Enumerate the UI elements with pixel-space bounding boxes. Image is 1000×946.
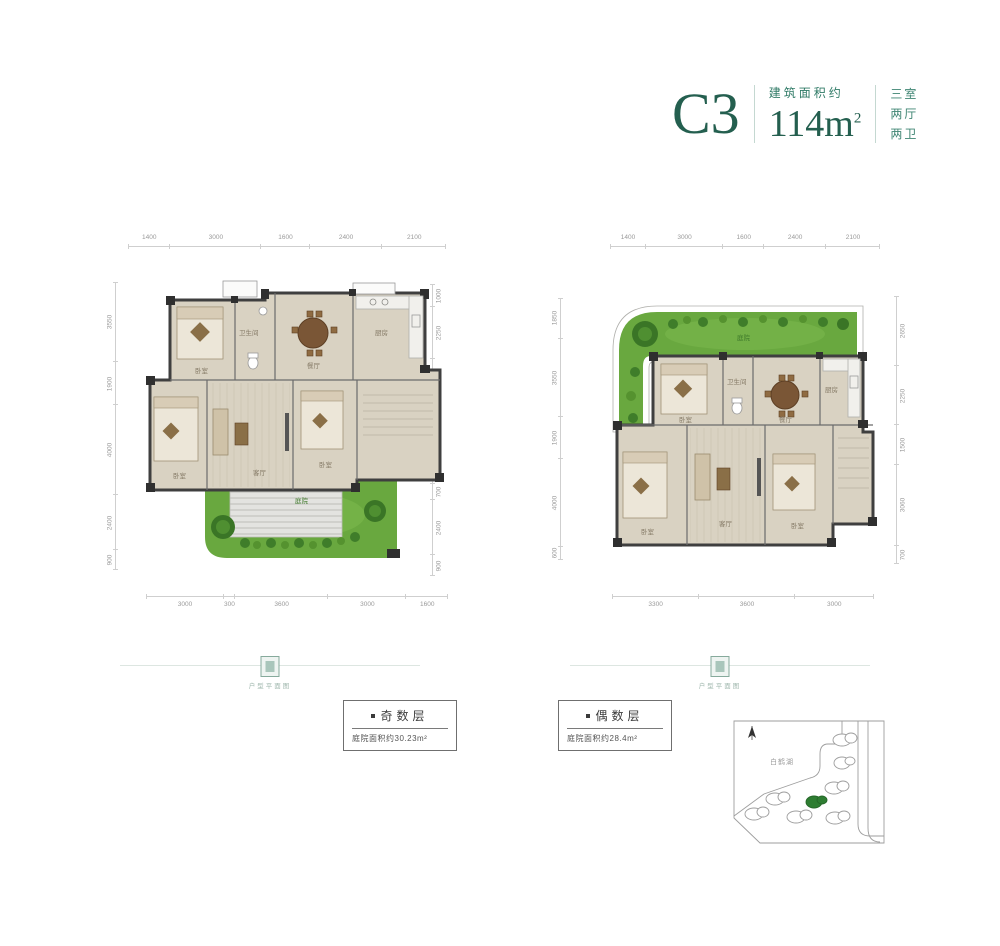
bullet-icon: [586, 714, 590, 718]
logo-seal-icon: [711, 656, 730, 677]
area-value: 114m2: [769, 105, 862, 143]
room-label: 卫生间: [239, 328, 259, 337]
even-plan-divider: 户型平面图: [570, 652, 870, 694]
building-footprints: [745, 733, 857, 824]
even-floor-area: 庭院面积约28.4m²: [567, 733, 663, 744]
header-divider: [875, 85, 876, 143]
room-label: 卧室: [319, 460, 333, 469]
even-floor-badge: 偶数层 庭院面积约28.4m²: [558, 700, 672, 751]
even-floor-plan: 庭院 卧室 卫生间 餐厅 厨房 卧室 客厅 卧室: [605, 292, 905, 582]
logo-seal-icon: [261, 656, 280, 677]
bullet-icon: [371, 714, 375, 718]
site-boundary: [734, 721, 884, 843]
room-label: 卧室: [791, 521, 805, 530]
odd-plan-divider: 户型平面图: [120, 652, 420, 694]
highlighted-building: [806, 796, 827, 808]
area-label: 建筑面积约: [769, 84, 862, 101]
divider-caption: 户型平面图: [120, 680, 420, 690]
layout-line: 两厅: [890, 105, 918, 122]
even-floor-title: 偶数层: [595, 707, 643, 724]
room-label: 卫生间: [727, 377, 747, 386]
odd-floor-plan: 卧室 卫生间 餐厅 厨房 卧室 客厅 卧室 庭院: [135, 275, 445, 575]
even-dims-top: 1400 3000 1600 2400 2100: [610, 234, 880, 247]
site-map: 白鹤湖: [730, 716, 888, 848]
divider-caption: 户型平面图: [570, 680, 870, 690]
odd-floor-badge: 奇数层 庭院面积约30.23m²: [343, 700, 457, 751]
odd-dims-left: 3550 1900 4000 2400 900: [103, 282, 116, 570]
lake-label: 白鹤湖: [770, 757, 794, 766]
room-label: 庭院: [295, 496, 309, 505]
room-label: 卧室: [195, 366, 209, 375]
room-label: 厨房: [825, 385, 838, 394]
layout-block: 三室 两厅 两卫: [890, 85, 918, 142]
badge-rule: [352, 728, 448, 729]
room-label: 卧室: [641, 527, 655, 536]
even-dims-left: 1850 3550 1900 4000 600: [548, 298, 561, 560]
room-label: 卧室: [173, 471, 187, 480]
odd-floor-title: 奇数层: [380, 707, 428, 724]
unit-header: C3 建筑面积约 114m2 三室 两厅 两卫: [672, 84, 918, 143]
badge-rule: [567, 728, 663, 729]
room-label: 餐厅: [307, 361, 321, 370]
area-block: 建筑面积约 114m2: [769, 84, 862, 143]
room-label: 客厅: [253, 468, 267, 477]
room-label: 厨房: [375, 328, 388, 337]
odd-dims-bottom: 3000 300 3600 3000 1600: [146, 596, 448, 609]
unit-name: C3: [672, 85, 740, 143]
north-arrow-icon: [748, 726, 756, 740]
room-label: 客厅: [719, 519, 733, 528]
odd-floor-area: 庭院面积约30.23m²: [352, 733, 448, 744]
layout-line: 两卫: [890, 125, 918, 142]
odd-dims-top: 1400 3000 1600 2400 2100: [128, 234, 446, 247]
room-label: 卧室: [679, 415, 693, 424]
layout-line: 三室: [890, 85, 918, 102]
header-divider: [754, 85, 755, 143]
floorplan-page: C3 建筑面积约 114m2 三室 两厅 两卫 1400 3000 1600 2…: [0, 0, 1000, 946]
room-label: 庭院: [737, 333, 751, 342]
room-label: 餐厅: [779, 415, 793, 424]
even-dims-bottom: 3300 3600 3000: [612, 596, 874, 609]
